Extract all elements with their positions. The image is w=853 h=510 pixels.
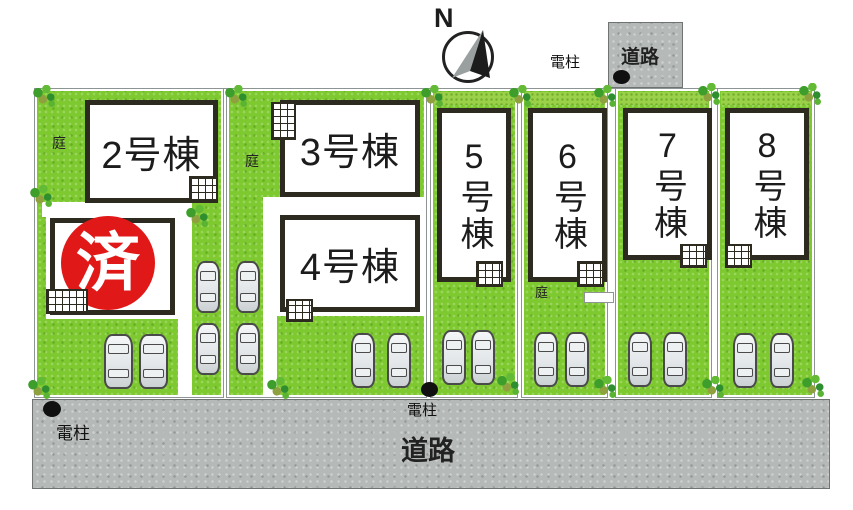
building-5-label: 5号棟 [457, 138, 491, 253]
car-icon [534, 332, 558, 387]
bush-icon [798, 83, 822, 105]
bush-icon [701, 376, 725, 398]
garden-label-lot2: 庭 [52, 133, 66, 153]
compass-needle-icon [440, 24, 500, 84]
car-icon [471, 330, 495, 385]
building-5: 5号棟 [437, 108, 511, 282]
car-icon [770, 333, 794, 388]
bush-icon [32, 85, 56, 107]
balcony-grid-building-7 [680, 244, 707, 268]
car-icon [733, 333, 757, 388]
bush-icon [697, 83, 721, 105]
car-icon [104, 334, 133, 389]
car-icon [387, 333, 411, 388]
utility-pole-label-top: 電柱 [550, 51, 580, 72]
bush-icon [508, 85, 532, 107]
building-6-label: 6号棟 [551, 138, 585, 253]
building-8-label: 8号棟 [750, 127, 784, 242]
top-road-label: 道路 [621, 42, 659, 69]
bush-icon [27, 377, 51, 399]
hedge-lot-5 [434, 92, 514, 105]
garden-label-lot6: 庭 [535, 282, 548, 301]
building-4-label: 4号棟 [300, 236, 400, 291]
car-icon [139, 334, 168, 389]
building-7: 7号棟 [623, 108, 712, 260]
car-icon [196, 261, 220, 313]
balcony-grid-building-4 [286, 299, 313, 322]
site-plan: 2号棟 3号棟 4号棟 5号棟 6号棟 7号棟 8号棟 済 [0, 0, 853, 510]
bush-icon [224, 85, 248, 107]
bush-icon [801, 375, 825, 397]
building-4: 4号棟 [280, 215, 420, 312]
building-6: 6号棟 [528, 108, 607, 282]
building-3: 3号棟 [280, 100, 420, 197]
bottom-road-label: 道路 [401, 429, 455, 468]
utility-pole-label-left: 電柱 [56, 419, 90, 444]
bush-icon [593, 85, 617, 107]
car-icon [628, 332, 652, 387]
garden-label-lot3: 庭 [245, 151, 259, 171]
balcony-grid-building-1 [46, 289, 88, 314]
bush-icon [593, 376, 617, 398]
bush-icon [420, 85, 444, 107]
building-3-label: 3号棟 [300, 121, 400, 176]
car-icon [236, 261, 260, 313]
hedge-lot-7 [619, 92, 708, 105]
utility-pole-dot-left [43, 401, 61, 417]
utility-pole-label-middle: 電柱 [407, 399, 437, 420]
car-icon [236, 323, 260, 375]
bush-icon [185, 205, 209, 227]
car-icon [196, 323, 220, 375]
building-8: 8号棟 [725, 108, 809, 260]
lot-6-step-notch [584, 292, 614, 303]
path-lot1-top [42, 202, 180, 217]
path-lot4-left [263, 197, 277, 396]
car-icon [351, 333, 375, 388]
balcony-grid-building-8 [725, 244, 752, 268]
building-7-label: 7号棟 [651, 127, 685, 242]
bush-icon [266, 377, 290, 399]
car-icon [565, 332, 589, 387]
balcony-grid-building-3 [271, 102, 296, 140]
car-icon [663, 332, 687, 387]
balcony-grid-building-6 [577, 261, 604, 287]
balcony-grid-building-5 [476, 261, 503, 287]
building-2-label: 2号棟 [101, 124, 201, 179]
path-lot1-right [178, 202, 192, 396]
path-lot4-top [263, 197, 425, 214]
bush-icon [29, 185, 53, 207]
car-icon [442, 330, 466, 385]
bush-icon [496, 373, 520, 395]
utility-pole-dot-middle [421, 382, 438, 397]
sold-badge-label: 済 [76, 231, 140, 295]
utility-pole-dot-top [613, 70, 630, 84]
balcony-grid-building-2 [189, 176, 218, 202]
